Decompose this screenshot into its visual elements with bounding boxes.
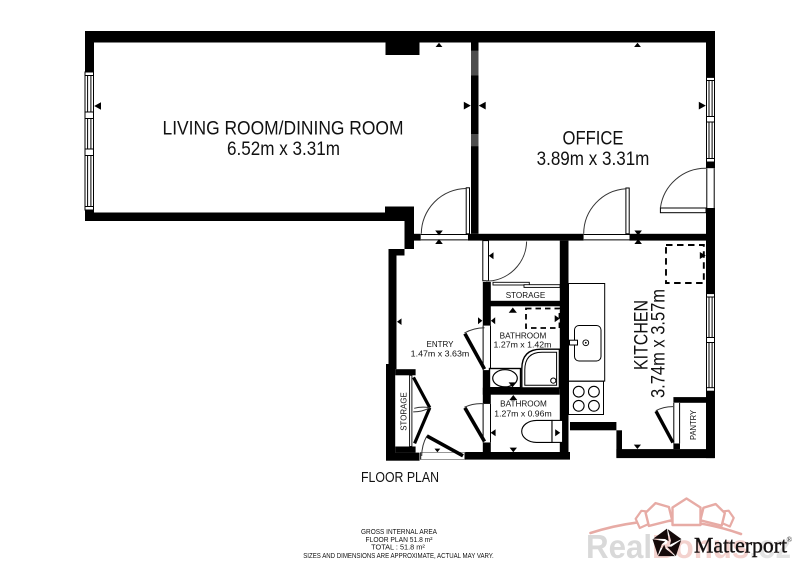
svg-text:BATHROOM: BATHROOM (500, 399, 547, 409)
svg-text:1.27m x 0.96m: 1.27m x 0.96m (494, 408, 551, 418)
svg-text:Matterport: Matterport (694, 533, 788, 558)
svg-text:3.89m x 3.31m: 3.89m x 3.31m (537, 149, 650, 170)
svg-text:3.74m x 3.57m: 3.74m x 3.57m (649, 289, 670, 398)
svg-text:PANTRY: PANTRY (688, 410, 698, 440)
svg-text:OFFICE: OFFICE (563, 129, 624, 150)
svg-text:SIZES AND DIMENSIONS ARE APPRO: SIZES AND DIMENSIONS ARE APPROXIMATE, AC… (303, 551, 494, 560)
svg-text:STORAGE: STORAGE (399, 392, 409, 431)
svg-text:1.47m x 3.63m: 1.47m x 3.63m (411, 349, 470, 359)
svg-text:FLOOR PLAN: FLOOR PLAN (361, 470, 439, 486)
svg-text:1.27m x 1.42m: 1.27m x 1.42m (494, 339, 552, 349)
svg-text:6.52m x 3.31m: 6.52m x 3.31m (227, 139, 340, 160)
svg-text:LIVING ROOM/DINING ROOM: LIVING ROOM/DINING ROOM (163, 119, 404, 140)
svg-text:STORAGE: STORAGE (506, 290, 546, 300)
svg-text:®: ® (787, 535, 793, 544)
